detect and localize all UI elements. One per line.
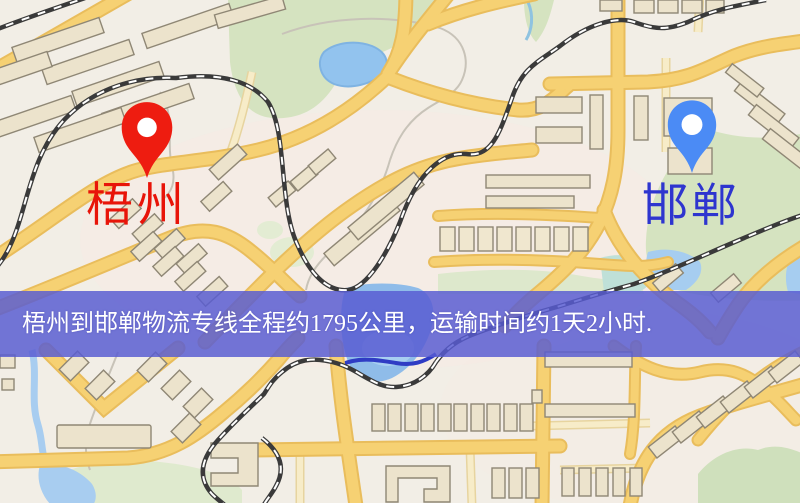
destination-label: 邯郸 — [642, 180, 740, 231]
origin-pin-hole — [137, 118, 157, 138]
building-bar — [486, 196, 574, 208]
building-bar — [486, 175, 590, 188]
origin-label: 梧州 — [86, 180, 188, 232]
route-info-text: 梧州到邯郸物流专线全程约1795公里，运输时间约1天2小时. — [0, 291, 800, 357]
route-info-banner: 梧州到邯郸物流专线全程约1795公里，运输时间约1天2小时. — [0, 291, 800, 357]
destination-pin-hole — [682, 114, 703, 135]
map-canvas: 梧州 邯郸 — [0, 0, 800, 503]
map-viewport: 梧州 邯郸 梧州到邯郸物流专线全程约1795公里，运输时间约1天2小时. — [0, 0, 800, 503]
